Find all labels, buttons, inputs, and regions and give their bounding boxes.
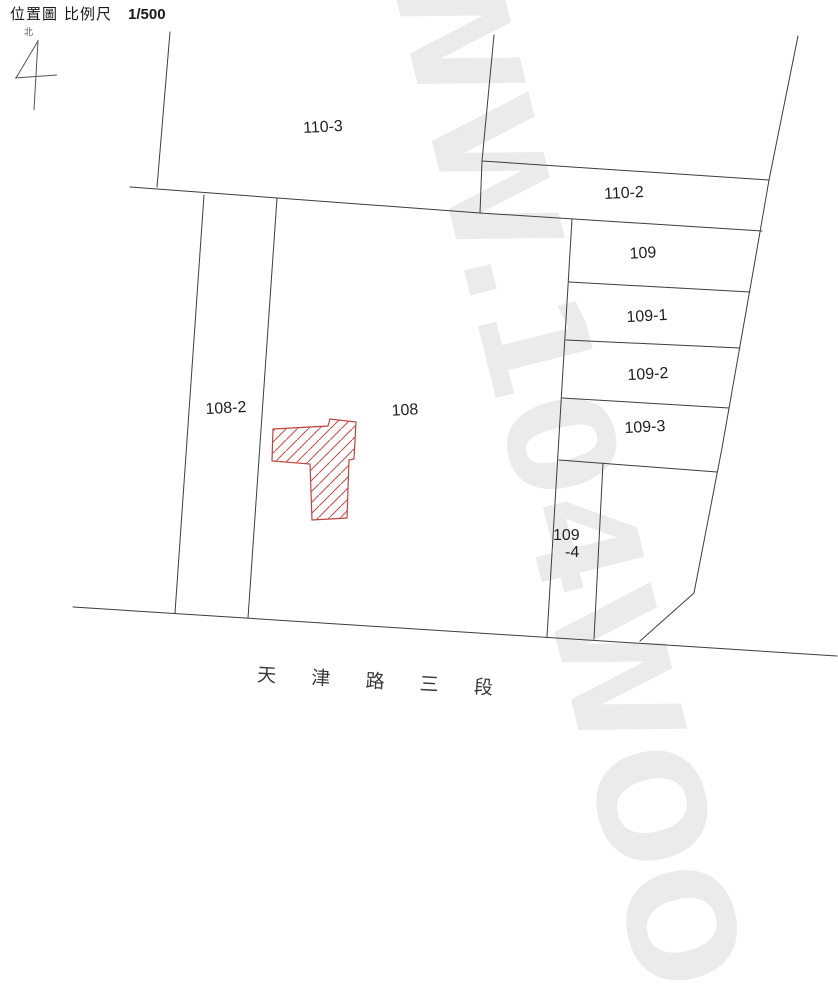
road-line	[73, 607, 837, 656]
parcel-label-109-4: 109 -4	[553, 527, 580, 561]
boundary-109-stack-left	[547, 219, 572, 637]
map-title: 位置圖	[10, 6, 58, 23]
parcel-label-110-3: 110-3	[303, 118, 344, 138]
parcel-label-109-1: 109-1	[626, 307, 668, 327]
boundary-outer-right	[640, 36, 798, 641]
parcel-label-109-4-line2: -4	[565, 544, 580, 561]
map-title-row: 位置圖比例尺1/500	[10, 3, 166, 24]
divider-109-1-bottom	[566, 340, 740, 348]
boundary-108-2-left	[175, 195, 204, 613]
boundary-109-4-right	[594, 463, 603, 639]
north-label: 北	[24, 25, 33, 38]
parcel-label-109: 109	[629, 244, 657, 263]
north-arrow-icon	[15, 40, 57, 110]
parcel-label-109-4-line1: 109	[553, 527, 580, 544]
divider-110-2-top	[482, 161, 769, 180]
divider-109-2-bottom	[562, 398, 729, 408]
divider-109-bottom	[569, 282, 750, 292]
building-footprint	[272, 419, 356, 520]
scale-label: 比例尺	[64, 6, 112, 23]
parcel-label-109-2: 109-2	[627, 365, 669, 385]
boundary-110-3-left	[157, 32, 170, 187]
divider-110-2-bottom	[480, 213, 762, 231]
scale-value: 1/500	[128, 6, 166, 23]
boundary-110-3-right	[480, 35, 494, 213]
parcel-label-110-2: 110-2	[604, 184, 645, 204]
parcel-label-109-3: 109-3	[624, 418, 666, 438]
boundary-108-2-right	[248, 198, 277, 618]
cadastral-map	[0, 0, 838, 720]
divider-109-3-bottom	[559, 460, 717, 472]
boundary-upper-horizontal	[130, 187, 480, 213]
parcel-label-108: 108	[391, 401, 419, 420]
parcel-label-108-2: 108-2	[205, 399, 247, 419]
